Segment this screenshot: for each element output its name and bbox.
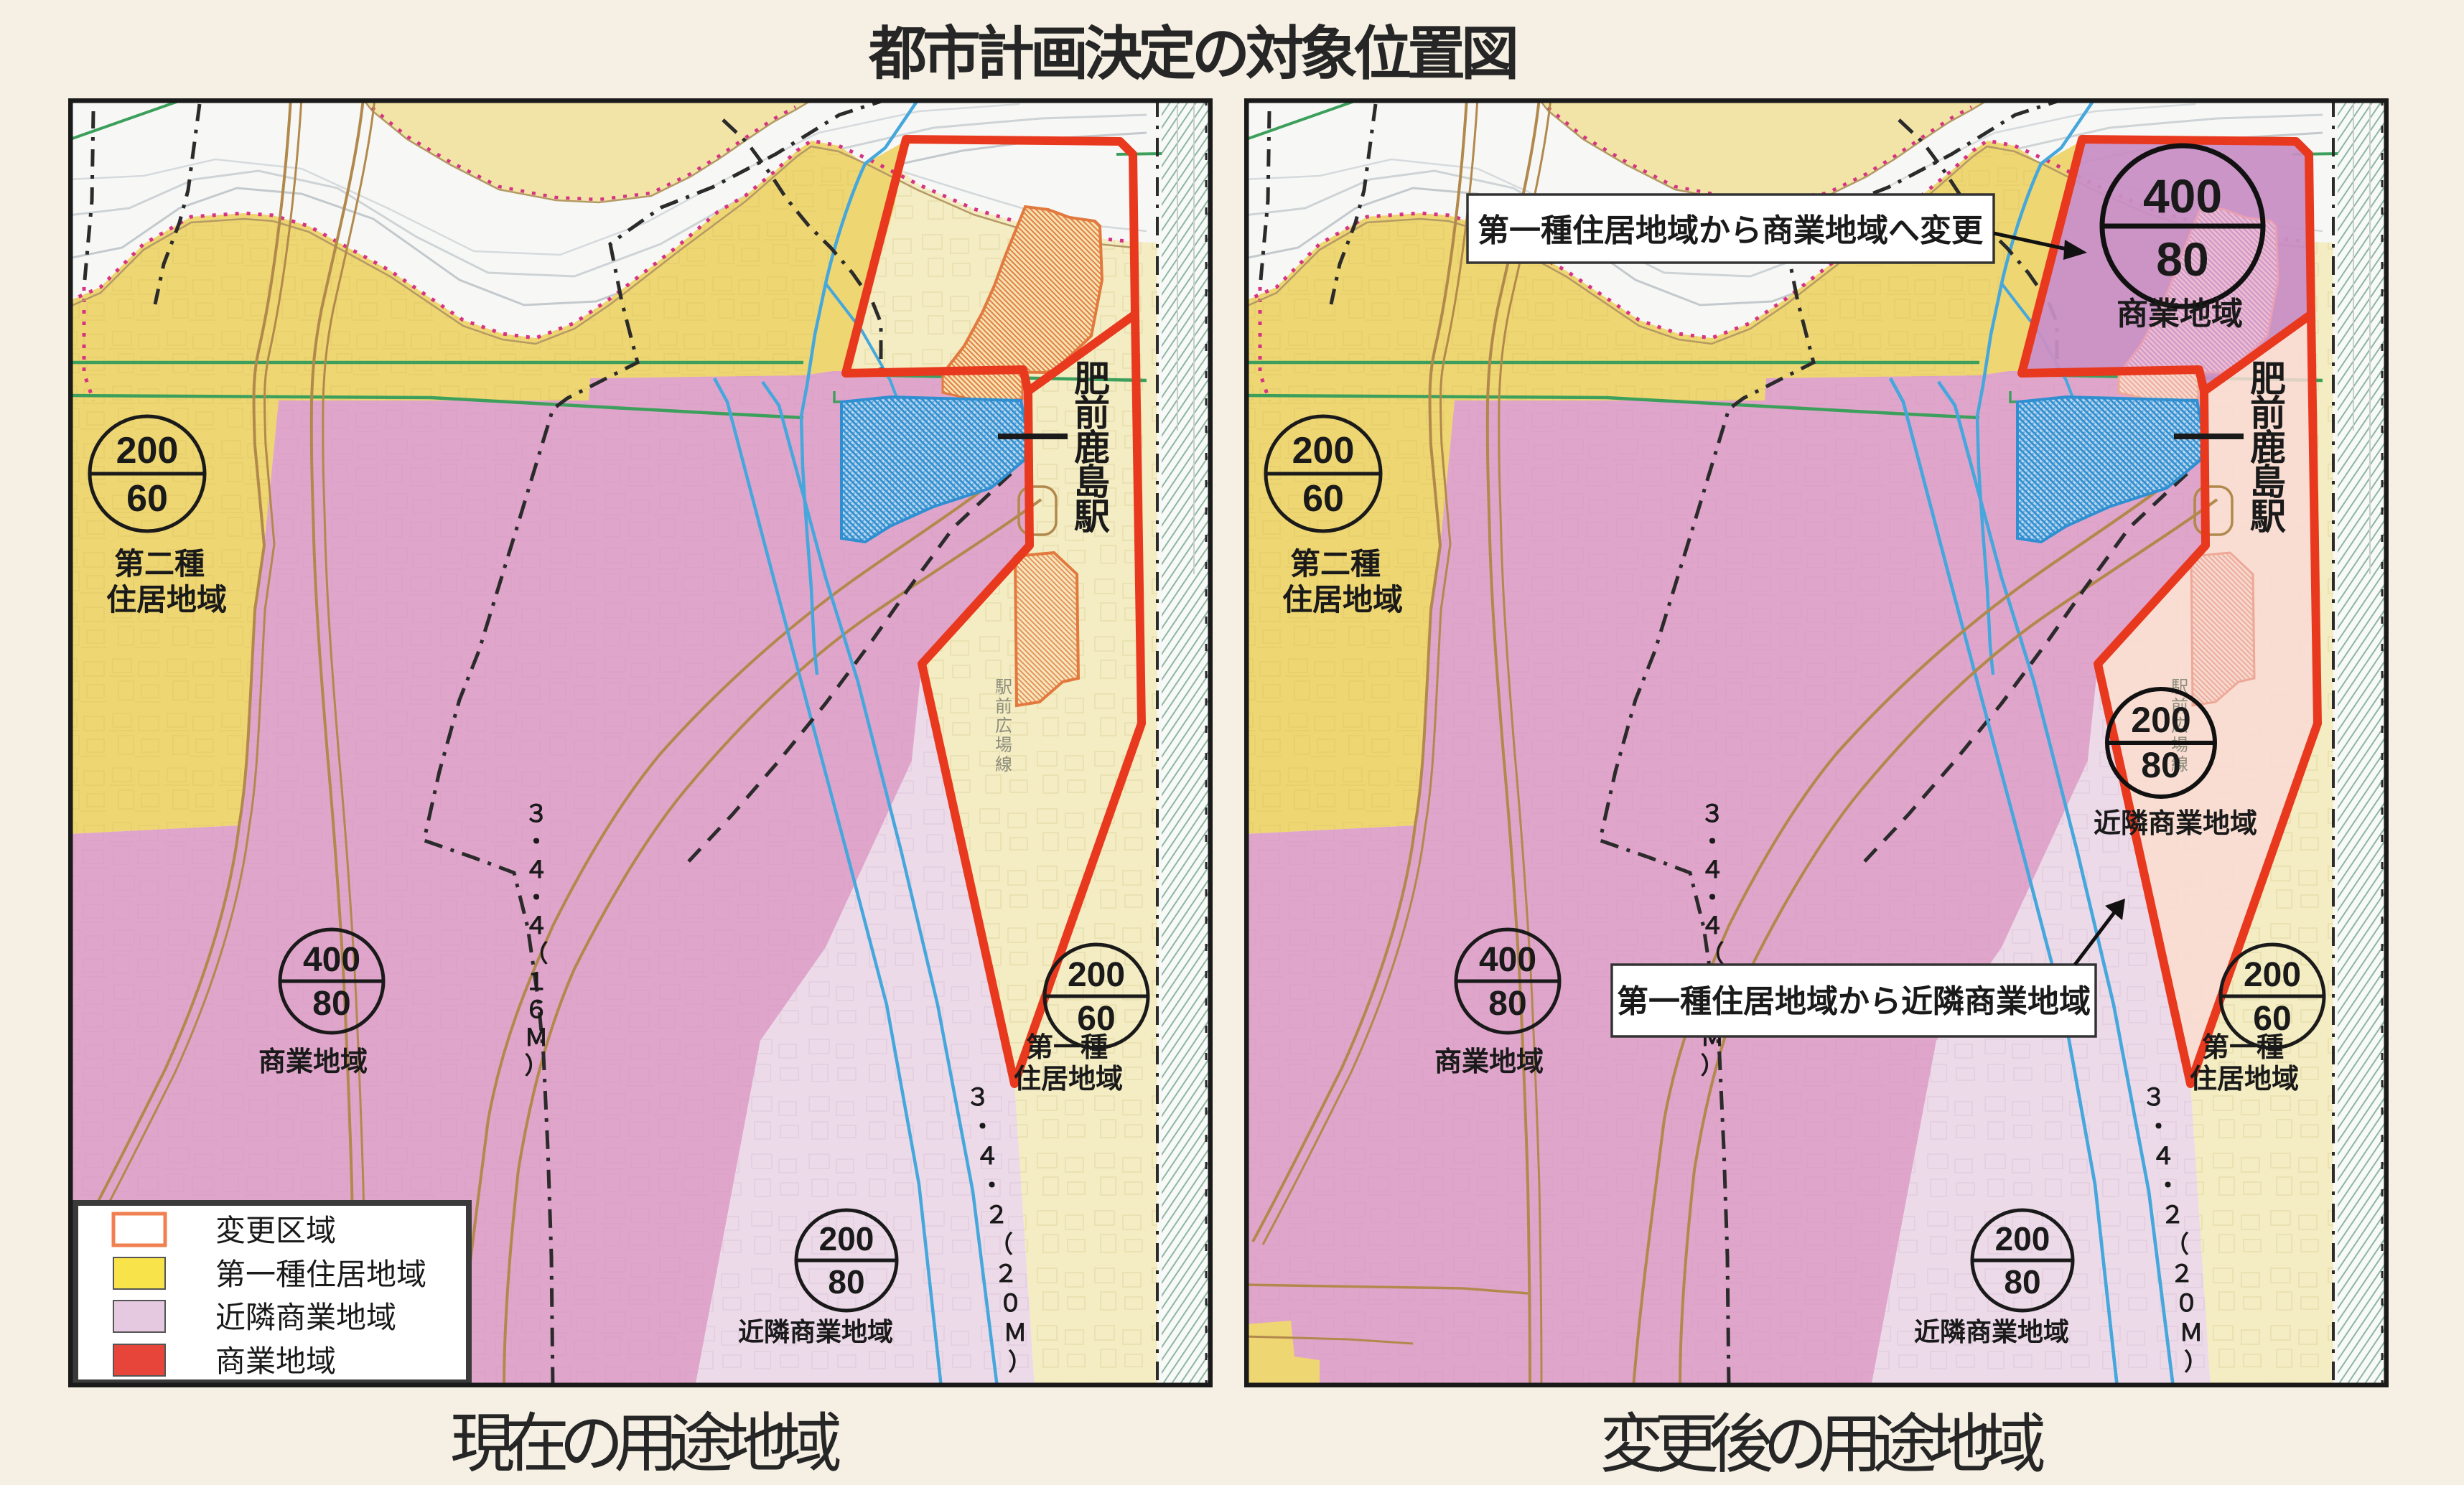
svg-text:変更区域: 変更区域 [215, 1214, 336, 1248]
svg-text:200: 200 [2131, 700, 2190, 740]
svg-text:第一種住居地域から近隣商業地域: 第一種住居地域から近隣商業地域 [1617, 984, 2091, 1019]
svg-text:商業地域: 商業地域 [2117, 296, 2243, 332]
svg-text:第一種住居地域: 第一種住居地域 [215, 1259, 426, 1292]
svg-text:80: 80 [2141, 745, 2181, 785]
svg-text:400: 400 [2143, 169, 2222, 222]
svg-text:近隣商業地域: 近隣商業地域 [2094, 809, 2257, 839]
svg-text:第一種住居地域から商業地域へ変更: 第一種住居地域から商業地域へ変更 [1478, 212, 1984, 248]
svg-text:近隣商業地域: 近隣商業地域 [215, 1302, 396, 1335]
svg-text:商業地域: 商業地域 [215, 1346, 336, 1379]
svg-text:80: 80 [2156, 233, 2208, 286]
